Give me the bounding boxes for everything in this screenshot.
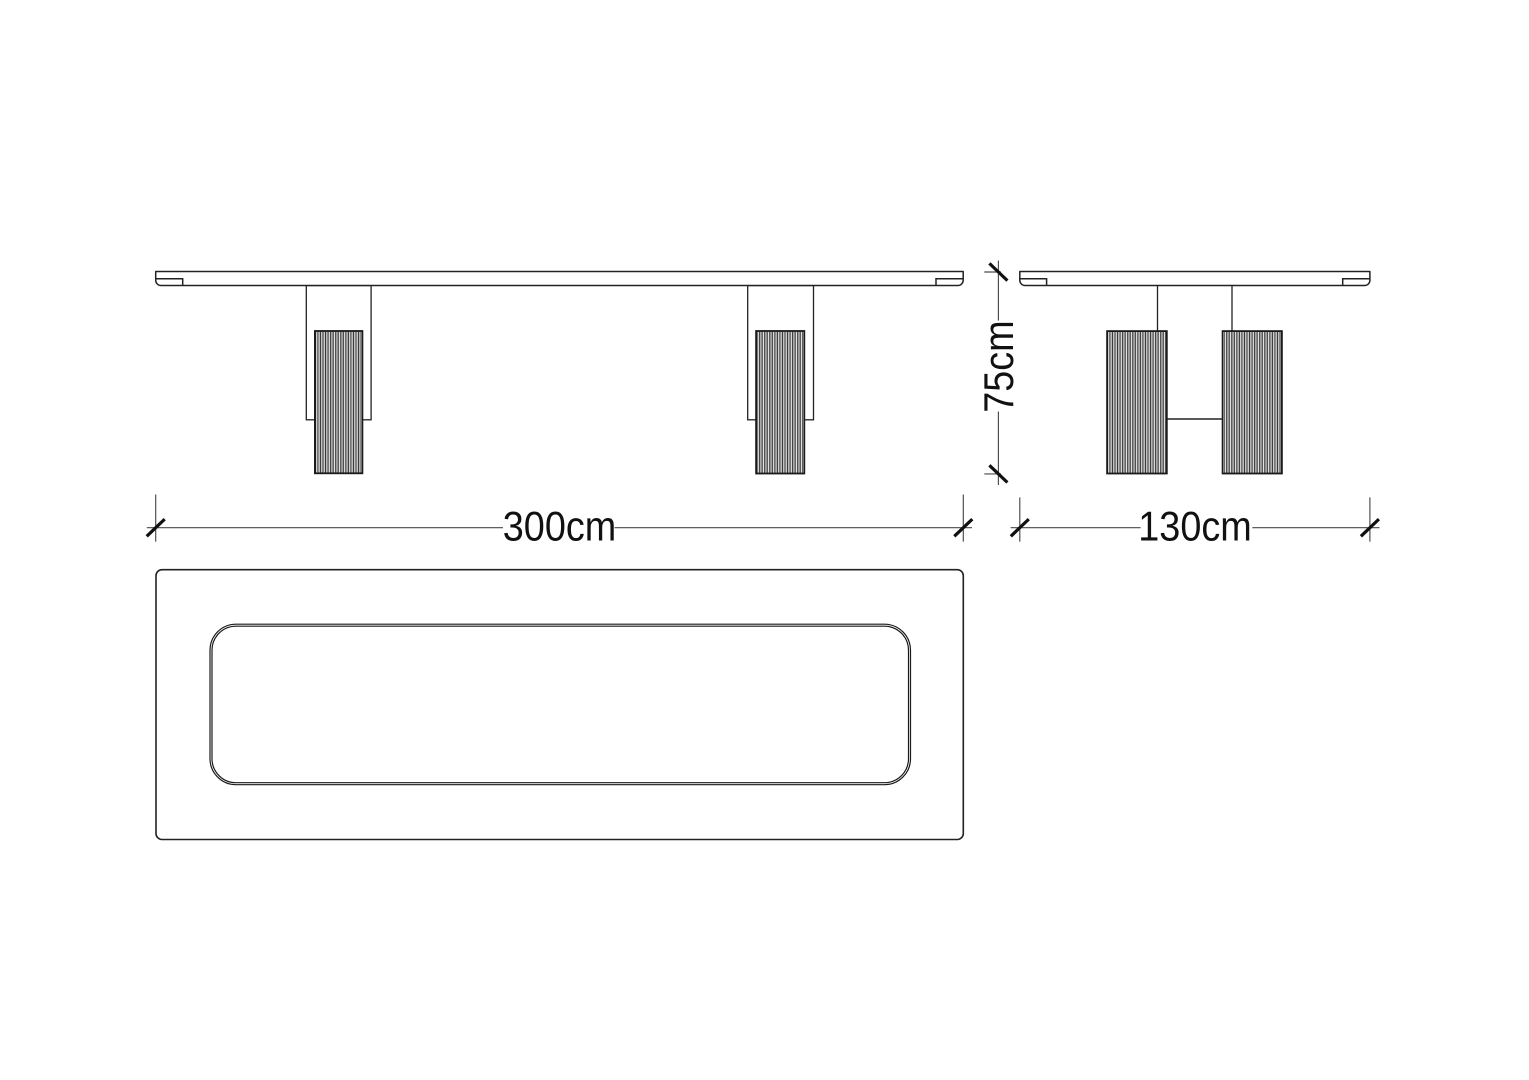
- svg-text:130cm: 130cm: [1138, 504, 1251, 550]
- svg-text:75cm: 75cm: [976, 320, 1022, 412]
- svg-text:300cm: 300cm: [503, 504, 616, 550]
